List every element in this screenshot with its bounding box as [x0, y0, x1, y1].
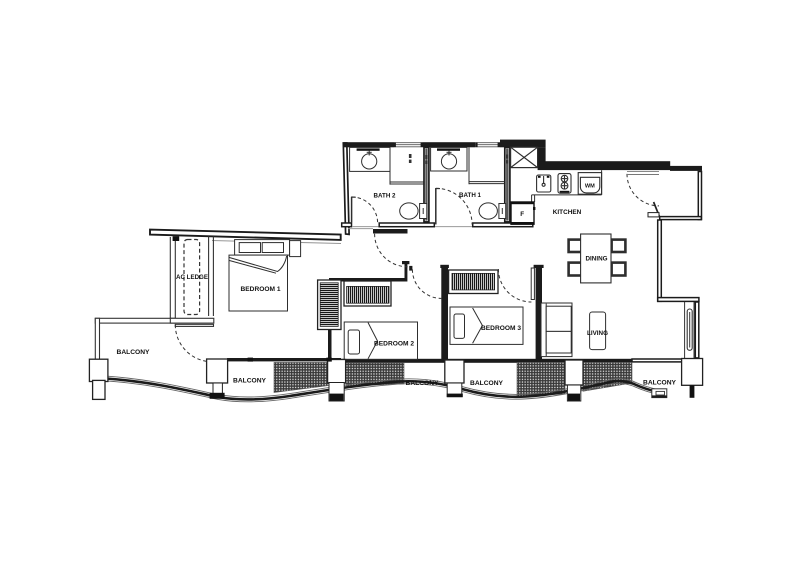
svg-text:BEDROOM 3: BEDROOM 3 — [481, 325, 521, 332]
svg-text:LIVING: LIVING — [587, 330, 608, 337]
svg-text:BALCONY: BALCONY — [643, 379, 677, 386]
svg-text:WM: WM — [585, 183, 595, 189]
svg-text:BALCONY: BALCONY — [406, 380, 440, 387]
svg-text:AC LEDGE: AC LEDGE — [176, 274, 208, 281]
svg-text:KITCHEN: KITCHEN — [553, 209, 582, 216]
svg-text:BEDROOM 1: BEDROOM 1 — [241, 286, 281, 293]
svg-text:BALCONY: BALCONY — [233, 377, 267, 384]
svg-text:DINING: DINING — [586, 256, 608, 263]
svg-text:F: F — [520, 211, 524, 218]
svg-text:BALCONY: BALCONY — [117, 349, 151, 356]
svg-text:BEDROOM 2: BEDROOM 2 — [374, 340, 414, 347]
svg-text:BATH 1: BATH 1 — [459, 192, 481, 199]
svg-text:BALCONY: BALCONY — [470, 380, 504, 387]
svg-text:BATH 2: BATH 2 — [374, 192, 396, 199]
